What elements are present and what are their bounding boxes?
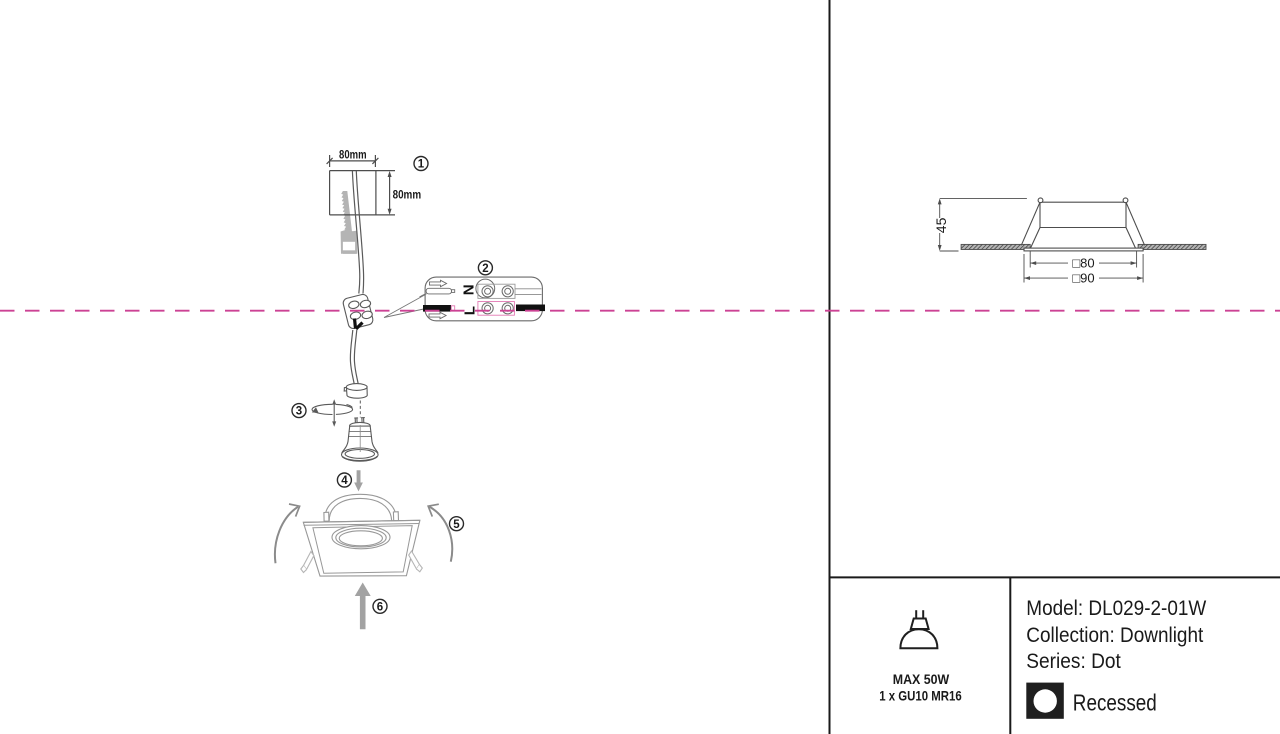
svg-text:3: 3: [296, 406, 302, 418]
svg-text:1 x GU10 MR16: 1 x GU10 MR16: [879, 687, 962, 703]
svg-text:Collection: Downlight: Collection: Downlight: [1026, 624, 1203, 647]
svg-text:1: 1: [418, 159, 425, 171]
svg-text:4: 4: [341, 475, 348, 487]
svg-text:N: N: [461, 284, 478, 295]
svg-text:□90: □90: [1072, 271, 1094, 286]
svg-text:MAX 50W: MAX 50W: [893, 671, 950, 687]
svg-text:2: 2: [482, 263, 488, 275]
svg-text:80mm: 80mm: [393, 188, 422, 202]
svg-text:45: 45: [933, 217, 949, 233]
svg-text:5: 5: [453, 519, 460, 531]
svg-text:Series: Dot: Series: Dot: [1026, 650, 1121, 673]
svg-text:Model: DL029-2-01W: Model: DL029-2-01W: [1026, 597, 1206, 620]
svg-text:6: 6: [377, 601, 383, 613]
svg-text:Recessed: Recessed: [1073, 690, 1157, 716]
svg-text:80mm: 80mm: [339, 147, 367, 161]
svg-text:□80: □80: [1072, 256, 1094, 271]
